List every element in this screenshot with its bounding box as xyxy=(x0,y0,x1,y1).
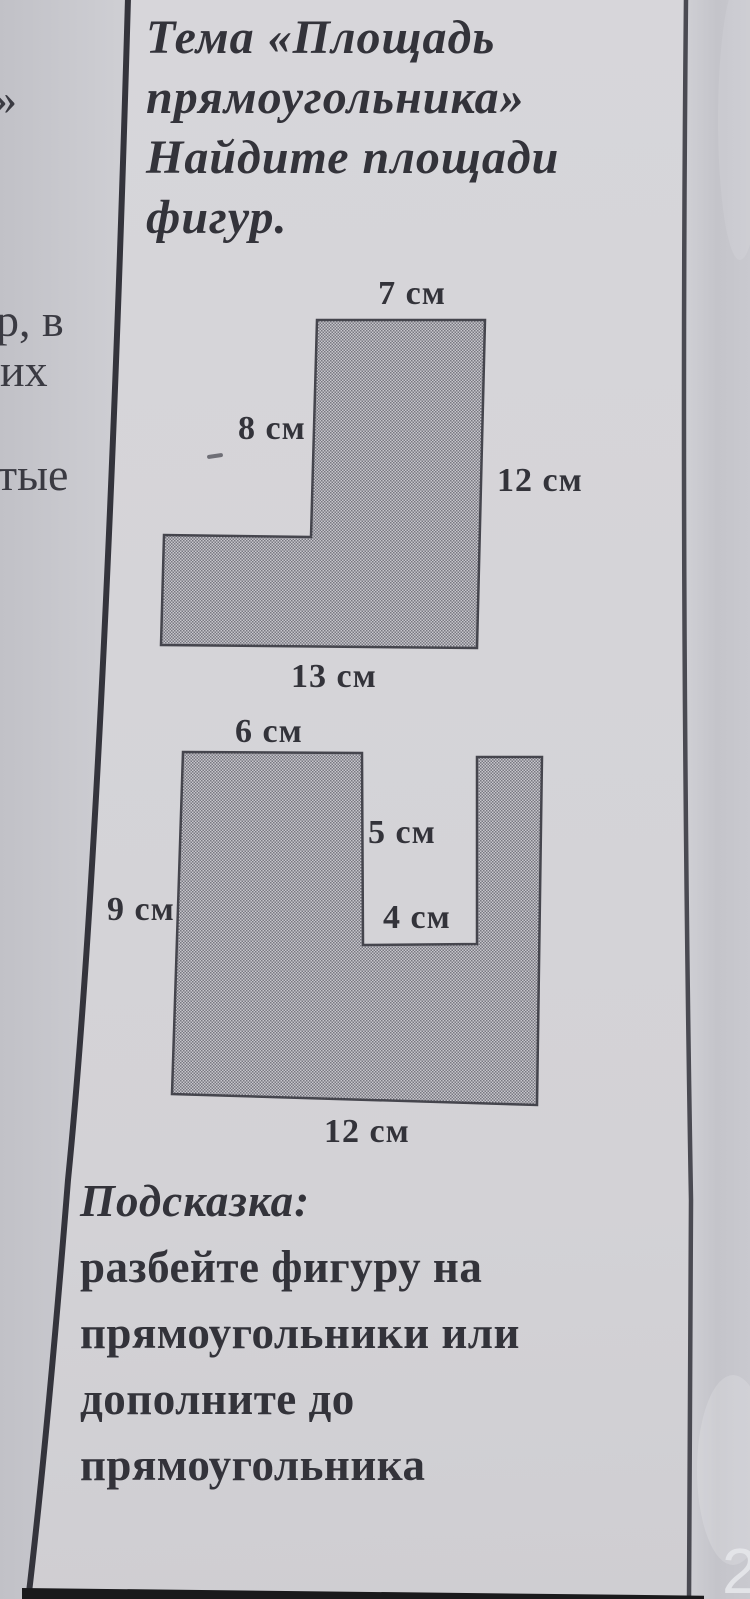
left-fragment-2: их xyxy=(0,344,48,397)
title-line-3: Найдите площади xyxy=(146,128,559,188)
figure-1-l-shape xyxy=(161,320,485,648)
hint-heading: Подсказка: xyxy=(80,1168,520,1234)
figure2-notch-depth-label: 5 см xyxy=(368,814,436,852)
figure2-top-dimension-label: 6 см xyxy=(235,713,303,751)
figure1-bottom-dimension-label: 13 см xyxy=(291,658,377,696)
figure-2-u-shape xyxy=(172,752,542,1105)
hint-line-4: прямоугольника xyxy=(80,1432,520,1498)
figure2-notch-width-label: 4 см xyxy=(383,899,451,937)
figure1-left-dimension-label: 8 см xyxy=(238,410,306,448)
hint-line-3: дополните до xyxy=(80,1366,520,1432)
left-fragment-3: тые xyxy=(0,448,68,501)
figure2-left-dimension-label: 9 см xyxy=(107,891,175,929)
hint-block: Подсказка: разбейте фигуру на прямоуголь… xyxy=(80,1168,520,1498)
title-line-2: прямоугольника» xyxy=(146,68,559,128)
worksheet-photo-page: Тема «Площадь прямоугольника» Найдите пл… xyxy=(0,0,750,1599)
figure1-top-dimension-label: 7 см xyxy=(378,275,446,313)
hint-line-2: прямоугольники или xyxy=(80,1300,520,1366)
title-line-1: Тема «Площадь xyxy=(146,8,559,68)
left-fragment-1: р, в xyxy=(0,294,64,347)
left-fragment-quote: » xyxy=(0,72,17,125)
hint-line-1: разбейте фигуру на xyxy=(80,1234,520,1300)
figure1-right-dimension-label: 12 см xyxy=(497,462,583,500)
page-number: 2 xyxy=(722,1534,750,1599)
worksheet-title: Тема «Площадь прямоугольника» Найдите пл… xyxy=(146,8,559,248)
title-line-4: фигур. xyxy=(146,188,559,248)
figure2-bottom-dimension-label: 12 см xyxy=(324,1113,410,1151)
